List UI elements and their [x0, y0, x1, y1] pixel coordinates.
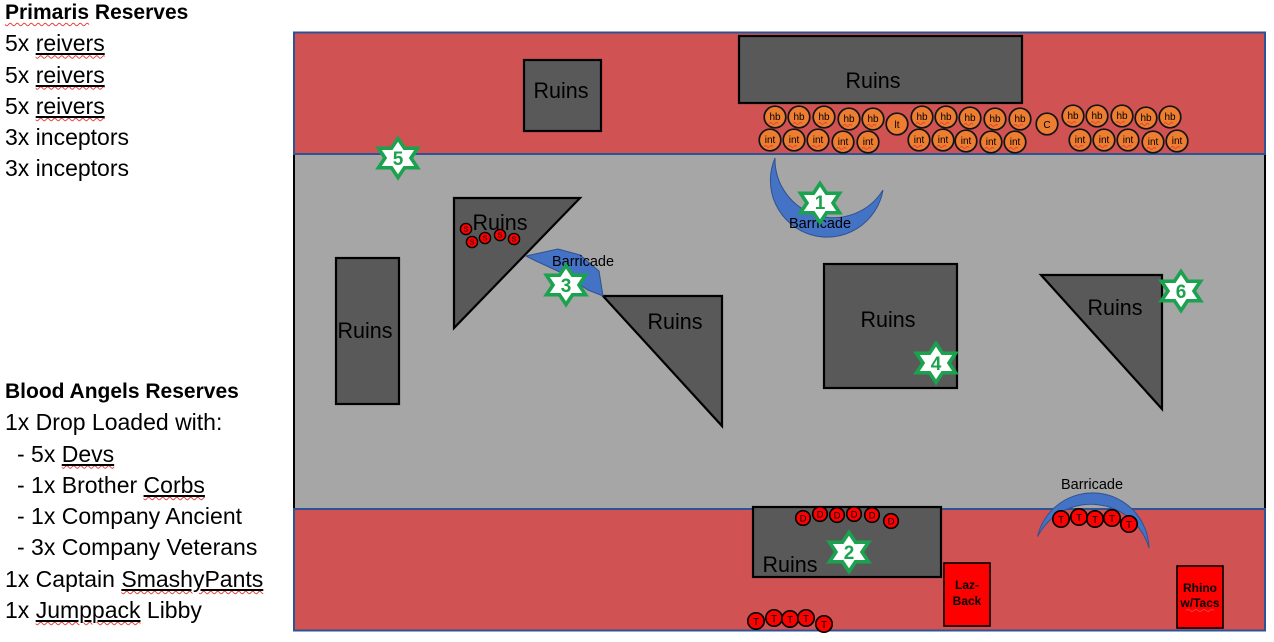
svg-text:Ruins: Ruins [648, 309, 703, 334]
svg-text:Ruins: Ruins [846, 68, 901, 93]
svg-text:w/Tacs: w/Tacs [1179, 596, 1219, 610]
svg-text:5: 5 [393, 149, 404, 170]
svg-text:3: 3 [561, 276, 572, 297]
svg-text:Ruins: Ruins [763, 552, 818, 577]
svg-text:Barricade: Barricade [552, 254, 614, 270]
svg-text:Laz-: Laz- [955, 578, 979, 592]
svg-text:Ruins: Ruins [861, 307, 916, 332]
svg-text:Rhino: Rhino [1183, 581, 1217, 595]
svg-text:4: 4 [931, 354, 942, 375]
svg-text:lt: lt [895, 120, 900, 131]
svg-text:Barricade: Barricade [1061, 477, 1123, 493]
svg-text:Ruins: Ruins [534, 78, 589, 103]
svg-text:1: 1 [815, 193, 826, 214]
svg-text:Back: Back [953, 594, 982, 608]
svg-text:C: C [1043, 120, 1050, 131]
svg-text:2: 2 [844, 543, 855, 564]
svg-text:Ruins: Ruins [338, 318, 393, 343]
svg-text:Ruins: Ruins [1088, 295, 1143, 320]
svg-text:6: 6 [1176, 282, 1187, 303]
